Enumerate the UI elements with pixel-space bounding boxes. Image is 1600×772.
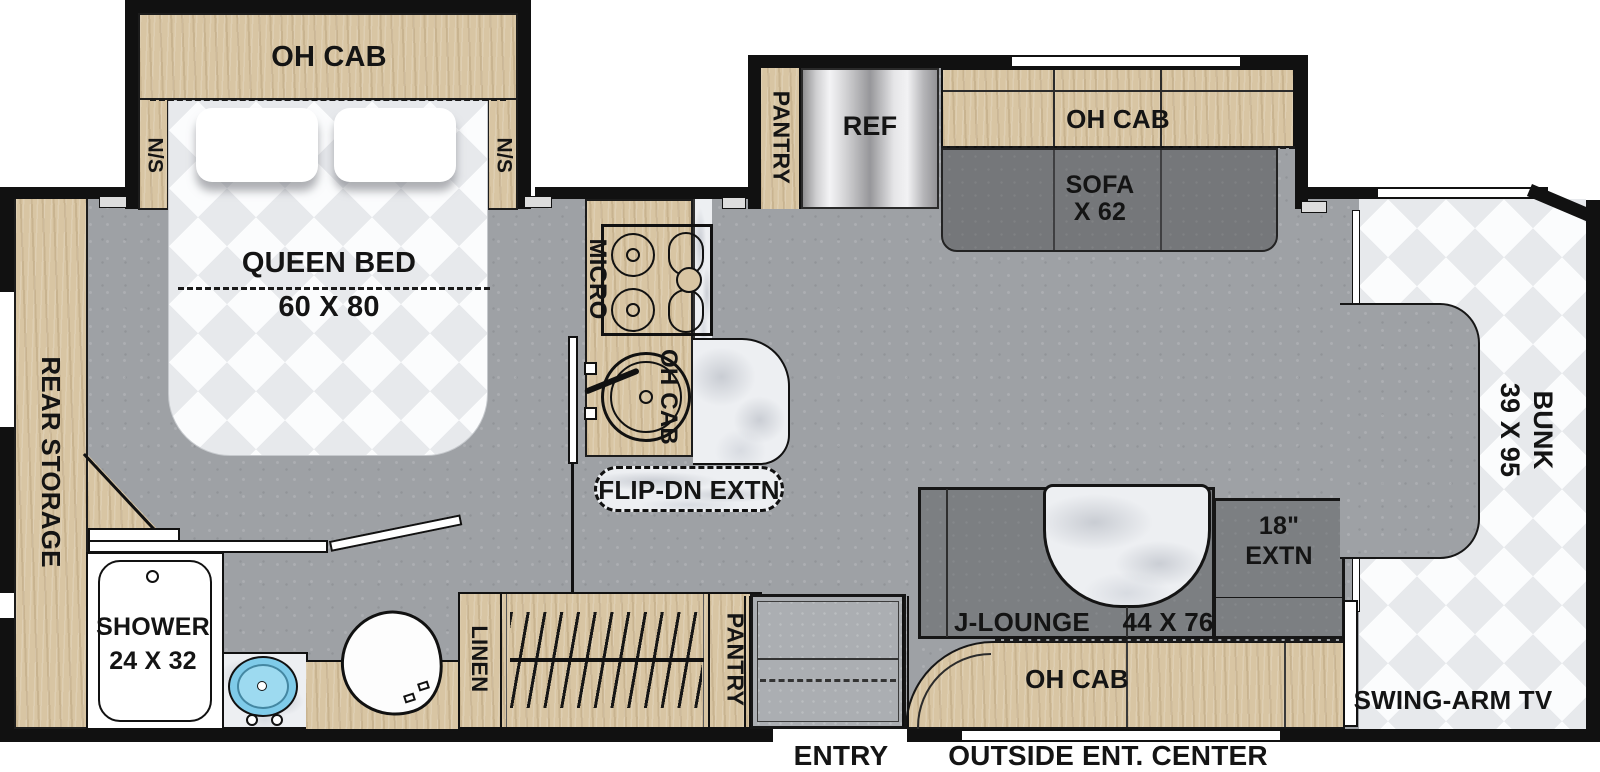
exterior-wall-rear-lower	[0, 618, 14, 742]
slideout-seal-bedroom-right	[524, 196, 552, 208]
nightstand-left-label: N/S	[143, 125, 166, 185]
stove-burner-bottom-left-center	[626, 303, 640, 317]
kitchen-counter-marble-bulge	[693, 338, 790, 465]
lounge-ohcab-label: OH CAB	[927, 665, 1227, 693]
lounge-cabinet-vline-2	[1284, 643, 1286, 727]
sofa-label: SOFA	[950, 172, 1250, 199]
exterior-wall-front	[1586, 200, 1600, 742]
bunk-size-label: 39 X 95	[1493, 370, 1526, 490]
ref-label: REF	[801, 112, 939, 141]
galley-ohcab-label: OH CAB	[941, 105, 1295, 133]
bunk-wall-upper	[1352, 210, 1360, 305]
kitchen-faucet-knob-upper	[584, 362, 597, 375]
bedroom-slideout-walls	[125, 0, 531, 209]
bunk-label-group: BUNK 39 X 95	[1493, 370, 1559, 490]
exterior-wall-rear-upper	[0, 187, 14, 292]
slideout-seal-bedroom-left	[99, 196, 127, 208]
slideout-seal-galley-left	[722, 197, 746, 209]
entry-steps-dashed-line	[760, 679, 896, 682]
entry-steps-line	[757, 658, 899, 660]
j-lounge-size-label: 44 X 76	[1118, 608, 1218, 636]
bath-sink-drain	[257, 681, 267, 691]
extension-size-label: 18"	[1213, 513, 1345, 540]
queen-bed-label: QUEEN BED	[179, 248, 479, 279]
outside-entertainment-door	[962, 731, 1280, 740]
window-galley-slideout	[1012, 57, 1240, 66]
bedroom-ohcab-label: OH CAB	[179, 42, 479, 73]
kitchen-ohcab-label: OH CAB	[655, 322, 681, 472]
bath-faucet-knob-right	[271, 714, 283, 726]
kitchen-faucet-knob-lower	[584, 407, 597, 420]
stove-burner-mid-right	[676, 267, 702, 293]
window-front-curbside	[1378, 189, 1538, 197]
outside-ent-center-label: OUTSIDE ENT. CENTER	[938, 741, 1278, 771]
exterior-wall-rear-middle	[0, 427, 14, 593]
slideout-seal-galley-right	[1301, 201, 1327, 213]
wardrobe-divider-2	[708, 594, 710, 727]
linen-label: LINEN	[467, 619, 491, 699]
queen-bed-size-label: 60 X 80	[179, 292, 479, 323]
cab-walkway	[1340, 303, 1480, 559]
hall-wall-line	[571, 464, 574, 592]
kitchen-end-wall	[568, 336, 578, 464]
sofa-size-label: X 62	[950, 199, 1250, 226]
lounge-seat-band-right	[1213, 598, 1345, 639]
micro-label: MICRO	[584, 224, 610, 334]
shower-label: SHOWER	[88, 614, 218, 641]
kitchen-sink-drain	[639, 390, 653, 404]
wardrobe-divider-1b	[506, 594, 507, 727]
queen-bed-dashed-line	[178, 287, 490, 290]
bath-faucet-knob-left	[246, 714, 258, 726]
extension-label: EXTN	[1213, 543, 1345, 570]
stove-burner-top-left-center	[626, 248, 640, 262]
lounge-cabinet-dashed-line	[995, 639, 1345, 642]
nightstand-right-label: N/S	[492, 125, 515, 185]
shower-size-label: 24 X 32	[88, 648, 218, 675]
bunk-label: BUNK	[1526, 370, 1559, 490]
pantry-bottom-label: PANTRY	[723, 604, 748, 714]
entry-jamb-right	[902, 596, 912, 727]
entry-steps-inner-frame	[757, 601, 899, 722]
rv-floorplan: OH CAB N/S N/S QUEEN BED 60 X 80 REAR ST…	[0, 0, 1600, 772]
wardrobe-rod	[510, 658, 704, 662]
entry-label: ENTRY	[766, 741, 916, 771]
shower-drain	[146, 570, 159, 583]
swing-arm-tv-label: SWING-ARM TV	[1318, 686, 1588, 714]
wardrobe-divider-1	[500, 594, 502, 727]
shower-pan	[98, 560, 212, 722]
flip-down-extension-label: FLIP-DN EXTN	[594, 476, 784, 504]
exterior-wall-top-middle	[535, 187, 748, 199]
pantry-top-label: PANTRY	[769, 82, 794, 192]
j-lounge-label: J-LOUNGE	[922, 608, 1122, 636]
rear-storage-label: REAR STORAGE	[37, 352, 65, 572]
